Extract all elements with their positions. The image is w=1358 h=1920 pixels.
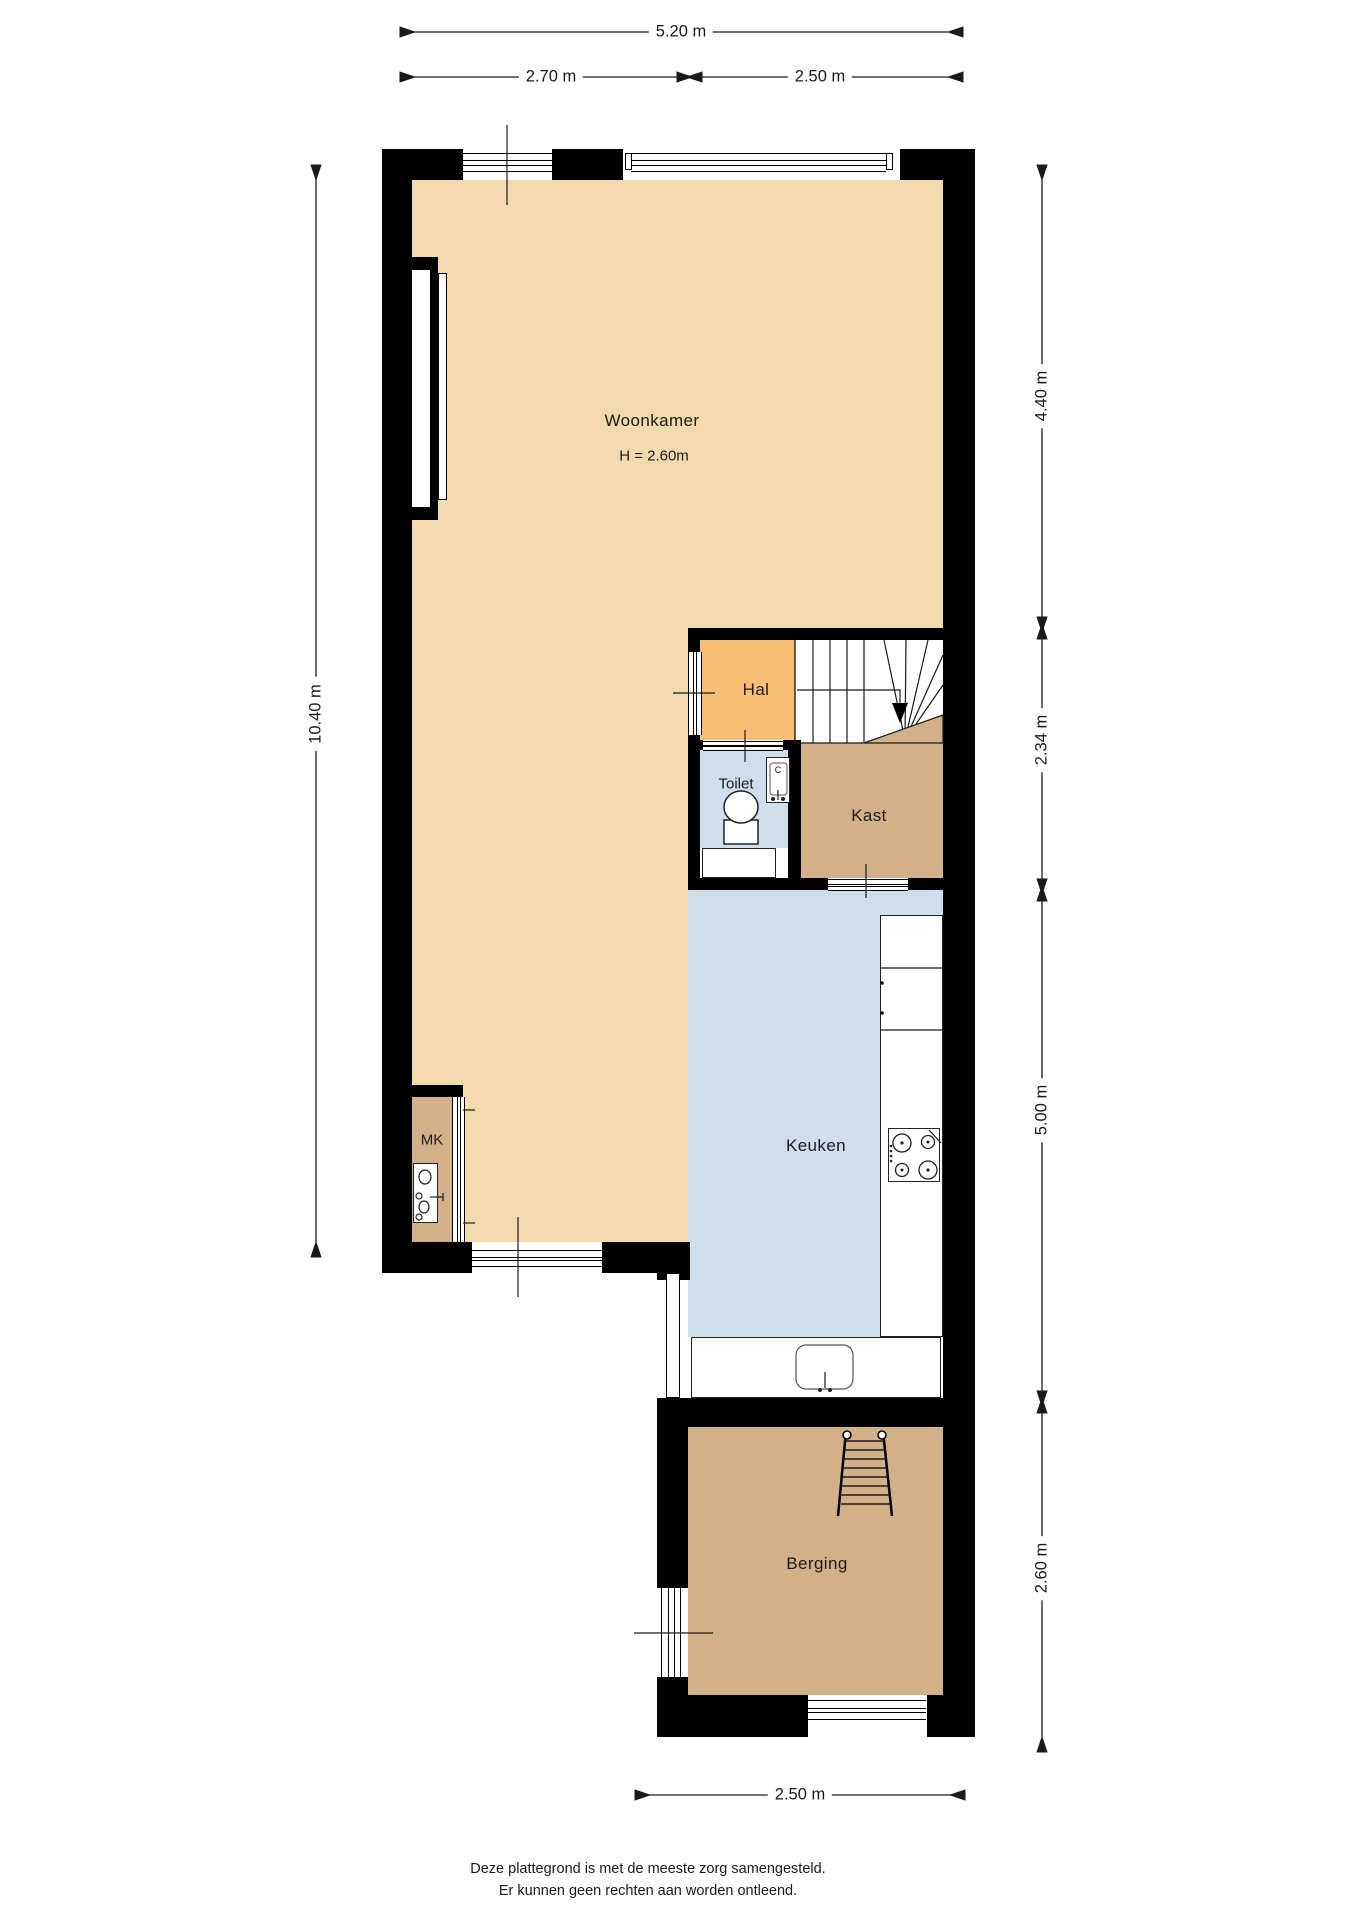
right-wall	[943, 149, 975, 1737]
berging-bottom-wall-a	[657, 1695, 808, 1737]
dim-right-woonkamer: 4.40 m	[1033, 364, 1052, 428]
dim-bottom-berging: 2.50 m	[768, 1786, 832, 1805]
woonkamer-bottom-wall-b	[602, 1242, 690, 1273]
toilet-door	[703, 741, 783, 751]
berging-left-window	[661, 1588, 681, 1677]
mk-door	[452, 1097, 465, 1242]
hal-glazed-door	[688, 652, 702, 735]
footer-disclaimer: Deze plattegrond is met de meeste zorg s…	[348, 1858, 948, 1903]
fontein-basin	[766, 757, 790, 803]
stairs-area	[795, 640, 943, 743]
top-window-right-post-right	[886, 153, 893, 170]
kast-door	[828, 879, 908, 891]
dim-top-total: 5.20 m	[649, 23, 713, 42]
boiler-label: C	[775, 765, 782, 775]
berging-bottom-window	[808, 1700, 926, 1720]
stove	[888, 1128, 940, 1182]
keuken-label: Keuken	[786, 1136, 846, 1156]
woonkamer-bottom-wall-a	[382, 1242, 472, 1273]
dim-right-keuken: 5.00 m	[1033, 1078, 1052, 1142]
berging-left-wall-a	[657, 1427, 688, 1588]
halblock-top-wall	[688, 628, 943, 640]
woonkamer-height-note: H = 2.60m	[619, 448, 689, 465]
keuken-counter-right	[880, 915, 943, 1337]
halblock-left-wall-a	[688, 640, 700, 652]
mk-top-wall	[412, 1085, 463, 1097]
halblock-bottom-wall-a	[688, 878, 828, 890]
top-wall-pier	[552, 149, 623, 180]
dim-right-hal: 2.34 m	[1033, 708, 1052, 772]
woonkamer-label: Woonkamer	[605, 411, 700, 431]
keuken-counter-bottom	[691, 1337, 941, 1398]
hal-toilet-wall-a	[688, 740, 703, 750]
top-window-right	[631, 153, 886, 172]
floorplan-canvas: Woonkamer H = 2.60m Hal Toilet Kast Keuk…	[0, 0, 1358, 1920]
footer-line-1: Deze plattegrond is met de meeste zorg s…	[348, 1858, 948, 1880]
dim-top-left: 2.70 m	[519, 68, 583, 87]
meter-box	[413, 1163, 438, 1223]
dim-top-right: 2.50 m	[788, 68, 852, 87]
kast-label: Kast	[851, 806, 887, 826]
footer-line-2: Er kunnen geen rechten aan worden ontlee…	[348, 1880, 948, 1902]
top-window-left	[463, 153, 552, 172]
keuken-back-door	[666, 1273, 680, 1398]
dim-left-total: 10.40 m	[307, 677, 326, 751]
top-window-right-post-left	[625, 153, 632, 170]
woonkamer-floor-upper	[412, 180, 945, 628]
niche-recess	[412, 270, 438, 507]
left-wall	[382, 149, 412, 1273]
dim-right-berging: 2.60 m	[1033, 1536, 1052, 1600]
toilet-threshold-box	[702, 848, 776, 878]
halblock-bottom-wall-b	[908, 878, 943, 890]
woonkamer-bottom-window	[472, 1250, 602, 1267]
niche-ledge-top	[412, 257, 438, 270]
niche-window-panel	[438, 273, 447, 500]
keuken-bottom-wall	[657, 1398, 975, 1427]
halblock-left-wall-b	[688, 735, 700, 878]
berging-label: Berging	[786, 1554, 847, 1574]
berging-bottom-wall-b	[927, 1695, 975, 1737]
toilet-label: Toilet	[718, 776, 753, 793]
niche-ledge-bottom	[412, 507, 438, 520]
mk-label: MK	[421, 1132, 444, 1149]
hal-label: Hal	[743, 680, 770, 700]
